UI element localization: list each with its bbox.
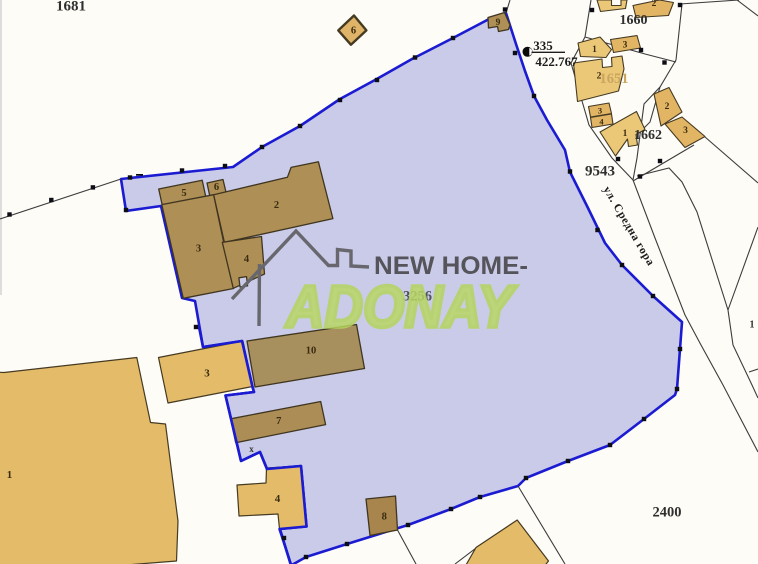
svg-text:1651: 1651 bbox=[600, 71, 629, 87]
svg-text:1660: 1660 bbox=[620, 13, 648, 28]
svg-text:2: 2 bbox=[274, 200, 279, 211]
svg-text:2: 2 bbox=[665, 102, 670, 112]
svg-text:1662: 1662 bbox=[634, 128, 662, 143]
svg-text:9: 9 bbox=[496, 18, 501, 28]
svg-text:ADONAY: ADONAY bbox=[284, 274, 517, 340]
svg-text:1681: 1681 bbox=[56, 0, 86, 15]
svg-text:3: 3 bbox=[623, 41, 628, 51]
svg-text:x: x bbox=[249, 444, 254, 454]
svg-text:4: 4 bbox=[275, 493, 281, 505]
svg-text:10: 10 bbox=[306, 346, 317, 357]
svg-text:4: 4 bbox=[244, 254, 250, 265]
svg-text:6: 6 bbox=[214, 182, 219, 193]
svg-text:1: 1 bbox=[750, 320, 755, 331]
svg-text:1: 1 bbox=[7, 469, 13, 481]
svg-text:422.767: 422.767 bbox=[535, 54, 578, 69]
svg-text:3: 3 bbox=[204, 367, 210, 379]
svg-text:8: 8 bbox=[382, 511, 387, 522]
svg-text:2400: 2400 bbox=[653, 505, 682, 521]
svg-text:1: 1 bbox=[623, 129, 628, 139]
svg-text:3: 3 bbox=[196, 244, 201, 255]
svg-text:9543: 9543 bbox=[585, 164, 615, 180]
svg-text:6: 6 bbox=[351, 26, 356, 37]
svg-text:335: 335 bbox=[533, 38, 553, 53]
svg-text:7: 7 bbox=[276, 416, 281, 427]
svg-text:2: 2 bbox=[597, 72, 602, 82]
svg-text:1: 1 bbox=[592, 45, 597, 55]
svg-text:2: 2 bbox=[652, 0, 657, 9]
svg-text:3: 3 bbox=[683, 126, 688, 136]
svg-text:3: 3 bbox=[598, 106, 602, 116]
svg-text:5: 5 bbox=[181, 188, 186, 199]
